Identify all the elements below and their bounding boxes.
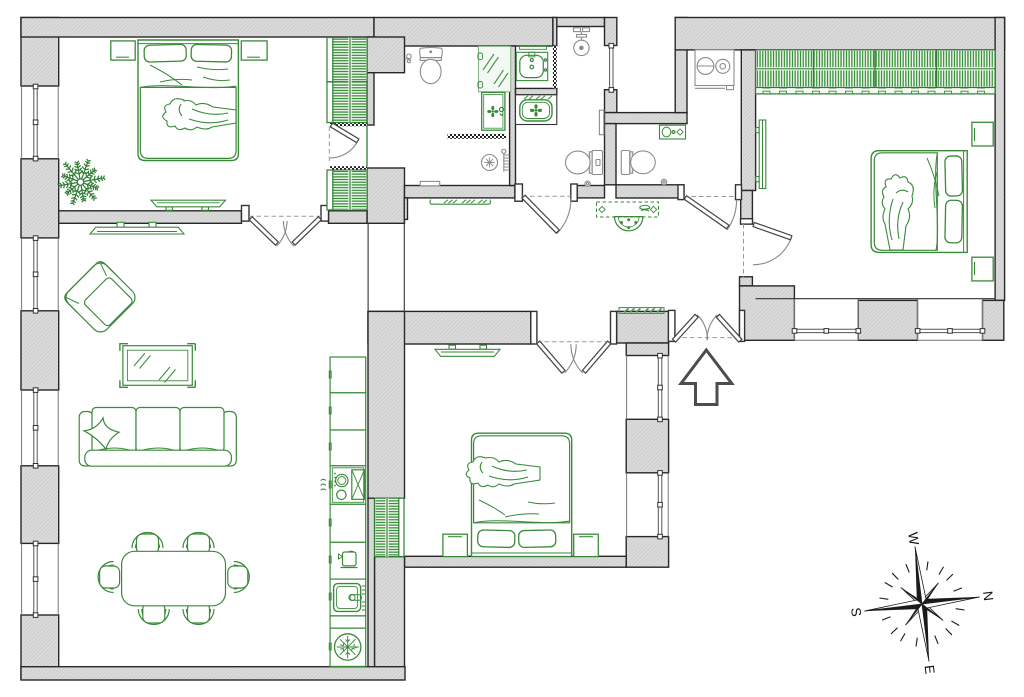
svg-text:S: S <box>848 607 864 618</box>
svg-text:E: E <box>922 664 938 675</box>
svg-text:W: W <box>905 531 921 546</box>
svg-text:N: N <box>980 590 996 602</box>
